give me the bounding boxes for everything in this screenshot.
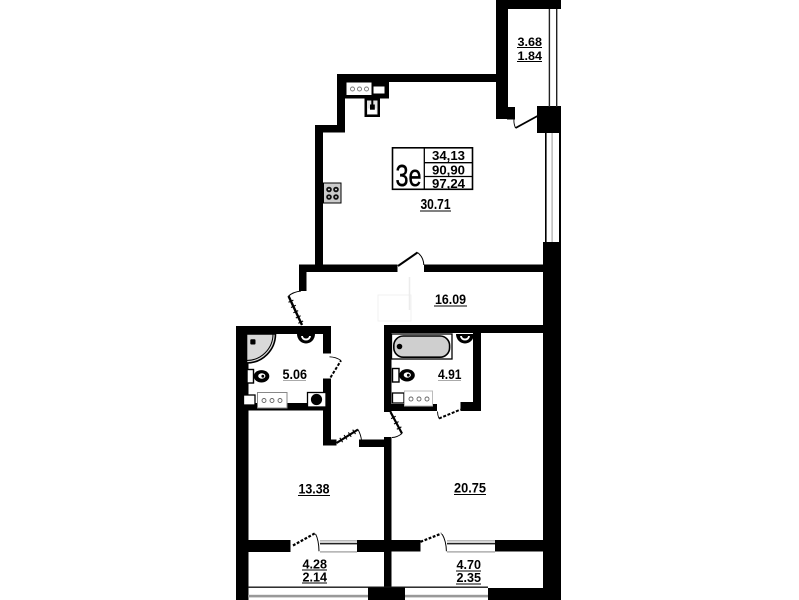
svg-text:13.38: 13.38 xyxy=(299,482,330,497)
svg-text:1.84: 1.84 xyxy=(518,49,543,63)
svg-text:34,13: 34,13 xyxy=(432,148,465,163)
svg-text:4.70: 4.70 xyxy=(457,558,482,572)
svg-text:3е: 3е xyxy=(396,158,422,193)
svg-text:16.09: 16.09 xyxy=(435,291,466,307)
svg-text:2.35: 2.35 xyxy=(457,571,482,585)
svg-text:20.75: 20.75 xyxy=(454,481,486,496)
svg-text:4.28: 4.28 xyxy=(303,558,328,572)
svg-text:5.06: 5.06 xyxy=(283,366,308,382)
svg-text:3.68: 3.68 xyxy=(518,35,543,49)
svg-text:97,24: 97,24 xyxy=(432,176,466,191)
svg-text:4.91: 4.91 xyxy=(438,366,462,382)
svg-text:2.14: 2.14 xyxy=(303,571,328,585)
